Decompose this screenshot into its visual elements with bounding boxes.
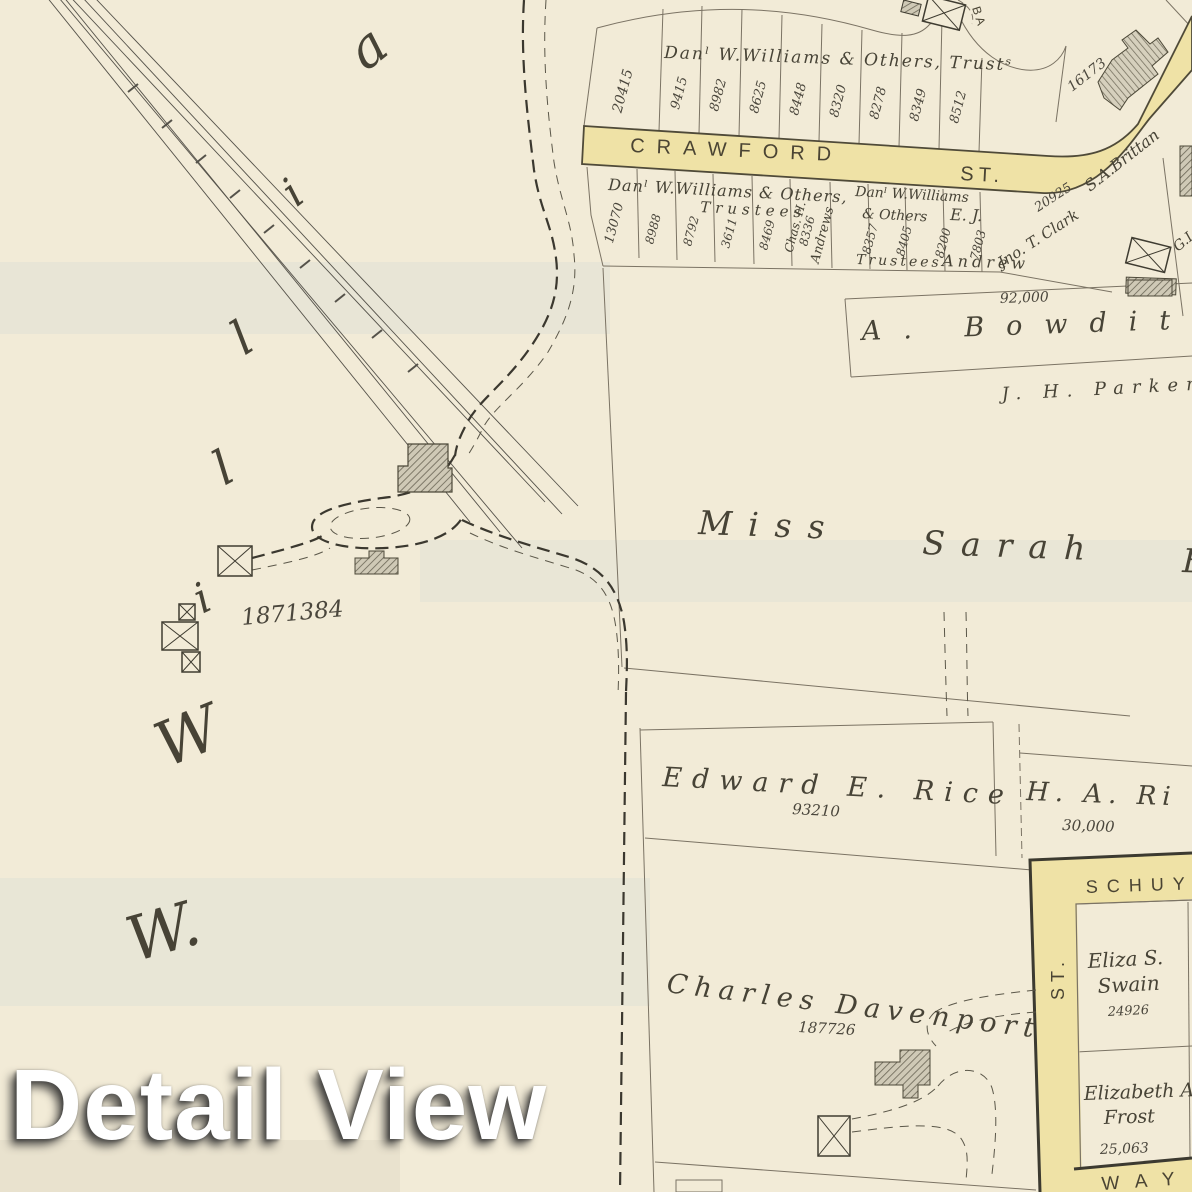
atlas-map-detail-view: Danˡ W.Williams & Others, Trustˢ 20415 9… xyxy=(0,0,1192,1192)
street-name-schuyler: SCHUYLE xyxy=(1085,872,1192,897)
street-suffix-crawford: ST. xyxy=(960,163,1005,187)
owner-name: H. A. Ri xyxy=(1025,777,1177,812)
owner-name: Elizabeth A. xyxy=(1082,1079,1192,1105)
owner-name: Eliza S. xyxy=(1086,945,1164,973)
owner-name: Trustees xyxy=(856,252,942,271)
bowditch-building xyxy=(1128,280,1172,296)
edge-building xyxy=(1180,146,1192,196)
owner-name: & Others xyxy=(862,206,928,225)
parcel-area: 24926 xyxy=(1106,1003,1149,1020)
parcel-area: 93210 xyxy=(792,800,841,820)
parcel-area: 30,000 xyxy=(1062,816,1116,836)
street-suffix-schuyler: ST. xyxy=(1048,956,1068,1000)
map-canvas: Danˡ W.Williams & Others, Trustˢ 20415 9… xyxy=(0,0,1192,1192)
owner-name: Miss xyxy=(697,503,841,547)
owner-name: B xyxy=(1181,541,1192,581)
parcel-area: 92,000 xyxy=(1000,289,1050,307)
parcel-area: 25,063 xyxy=(1099,1140,1150,1158)
owner-name: Frost xyxy=(1102,1105,1155,1129)
west-xbox xyxy=(218,546,252,576)
owner-name: E. J. xyxy=(949,205,983,225)
parcel-area: 187726 xyxy=(798,1018,857,1039)
bottom-xbox xyxy=(818,1116,850,1156)
owner-name: Sarah xyxy=(922,523,1102,568)
detail-view-watermark: Detail View xyxy=(10,1048,547,1163)
owner-name: Swain xyxy=(1097,971,1160,998)
